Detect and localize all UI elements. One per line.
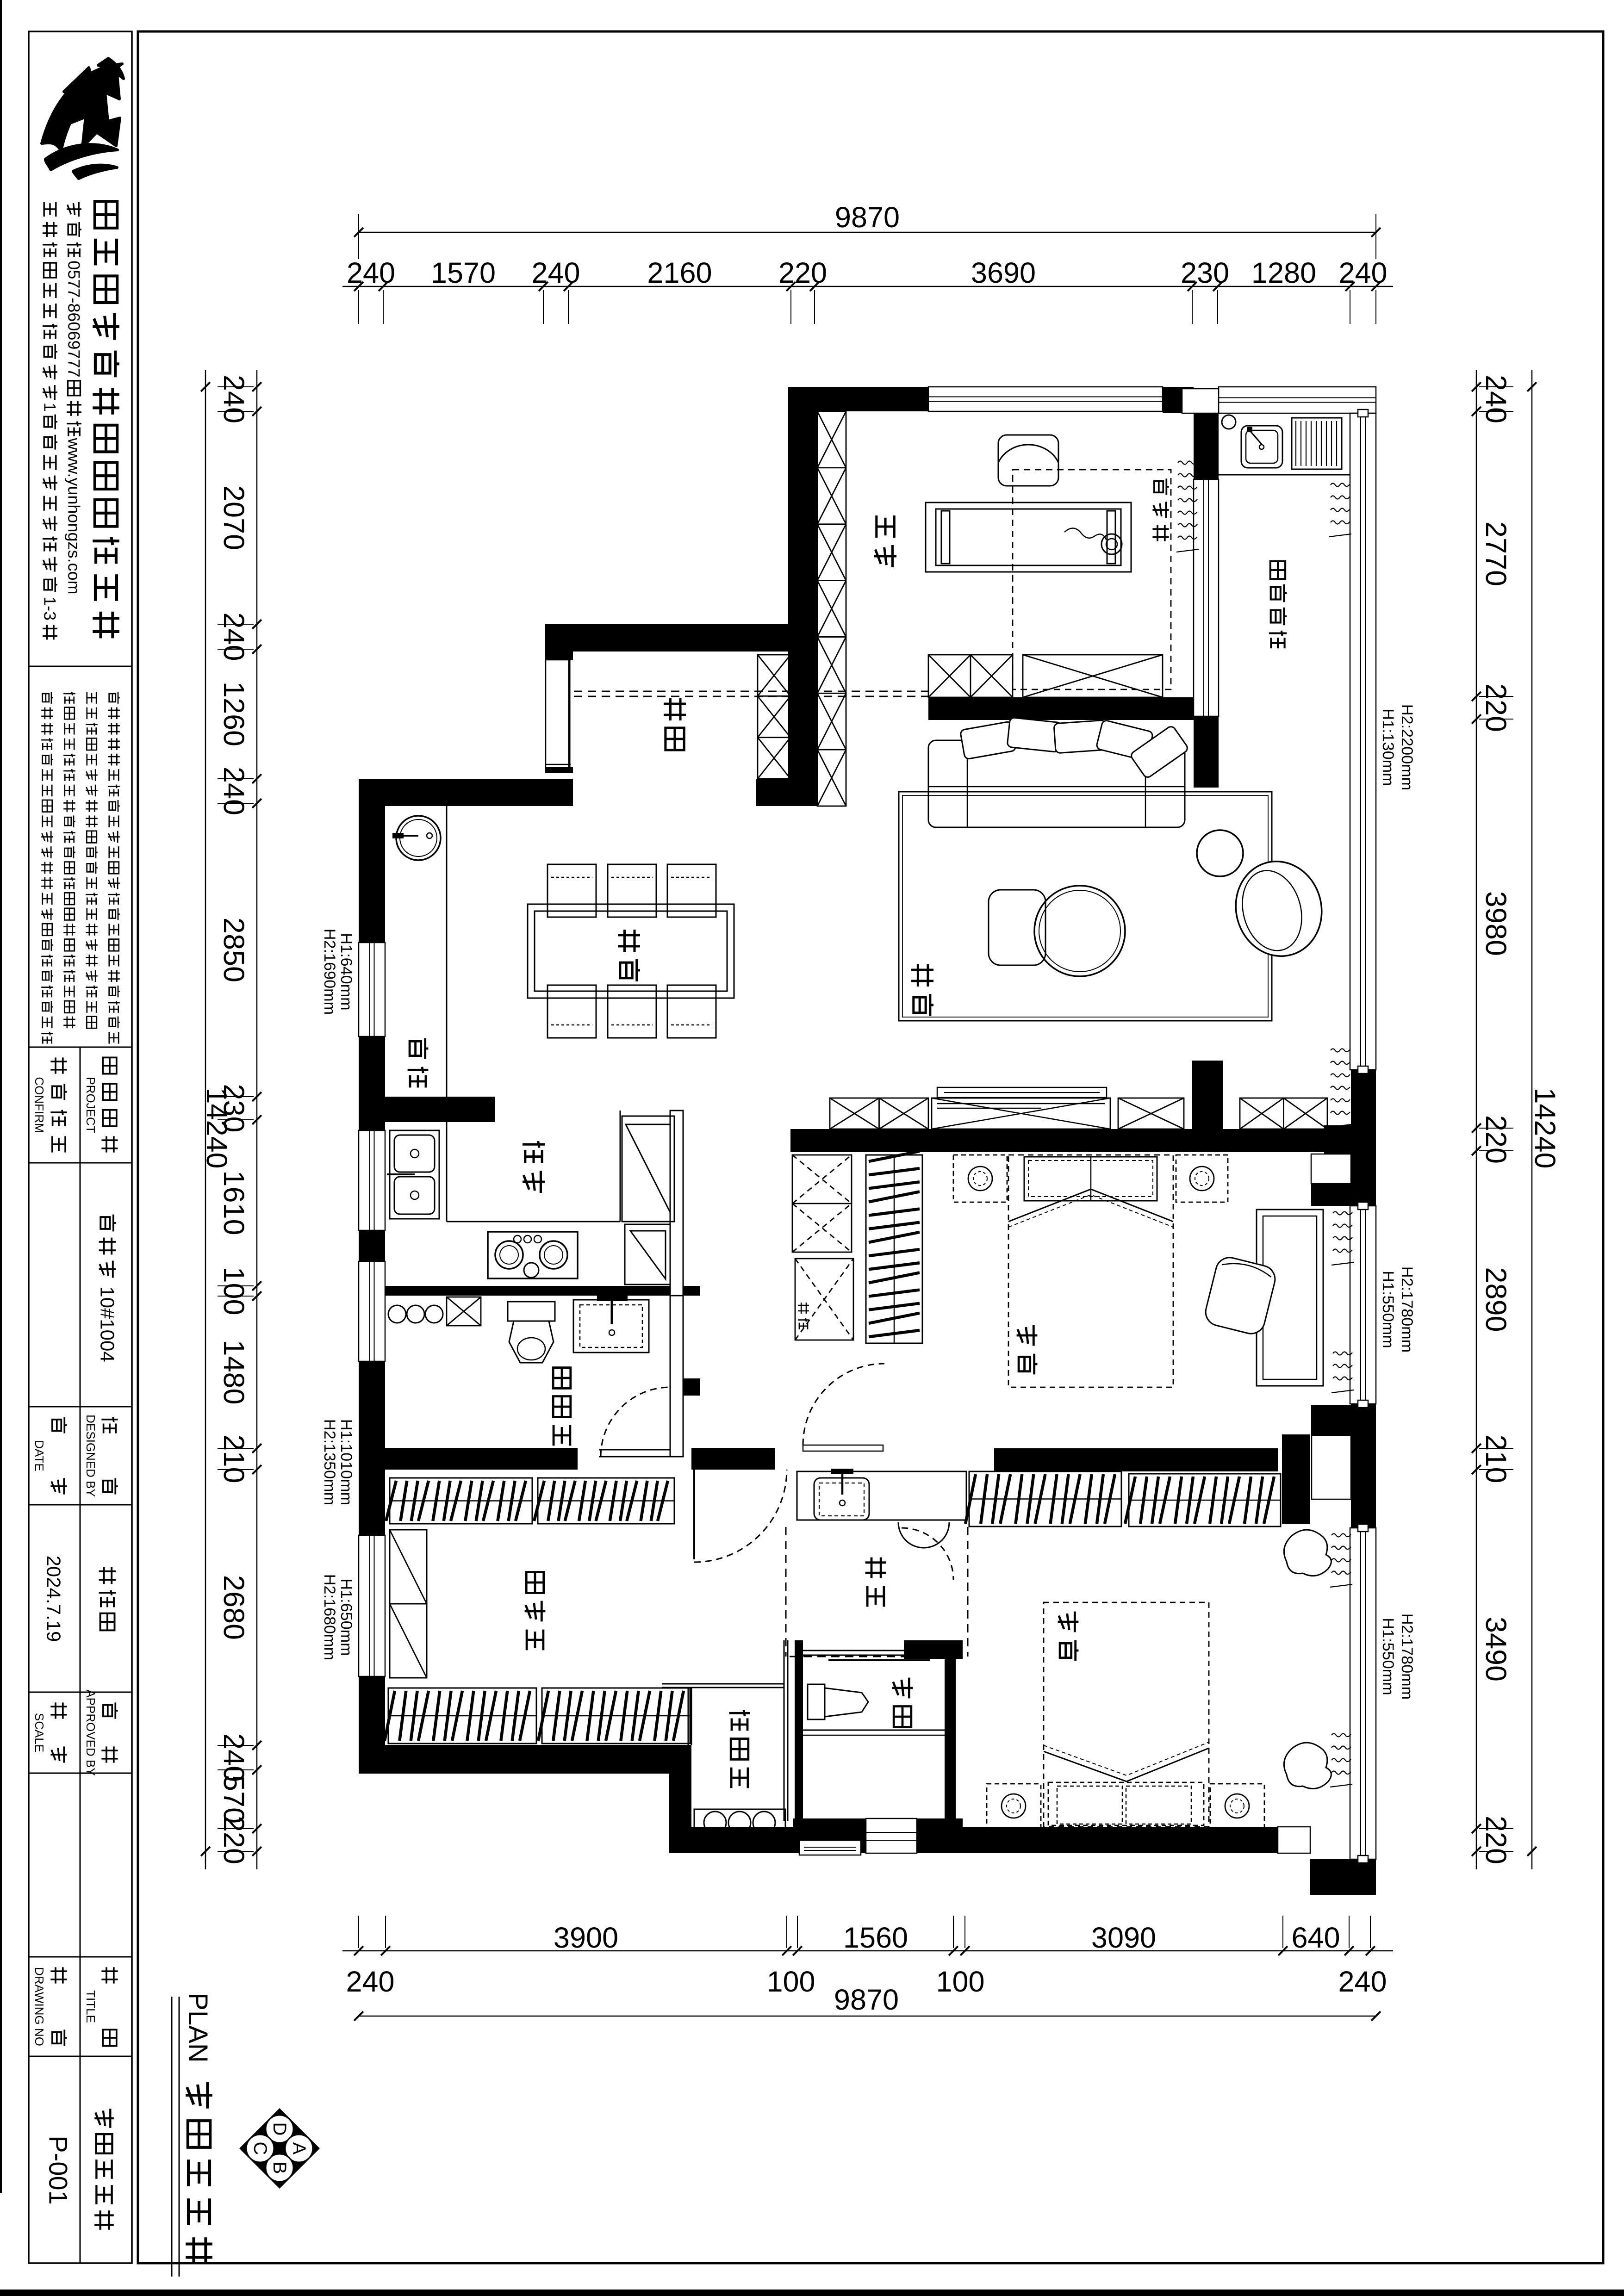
svg-text:210: 210 (1480, 1434, 1512, 1483)
svg-text:220: 220 (778, 257, 827, 289)
svg-text:PLAN: PLAN (183, 1992, 213, 2063)
svg-text:220: 220 (1480, 683, 1512, 732)
svg-text:230: 230 (1181, 257, 1229, 289)
svg-text:H1:550mm: H1:550mm (1379, 1271, 1397, 1348)
svg-text:0577-86069777: 0577-86069777 (65, 261, 84, 377)
svg-text:2024.7.19: 2024.7.19 (43, 1556, 65, 1642)
svg-text:240: 240 (1338, 1966, 1387, 1998)
svg-text:APPROVED BY: APPROVED BY (84, 1689, 98, 1775)
svg-text:1570: 1570 (431, 257, 496, 289)
svg-text:1560: 1560 (843, 1922, 908, 1954)
svg-text:1610: 1610 (218, 1170, 250, 1235)
svg-text:9870: 9870 (834, 1984, 899, 2016)
svg-text:H2:1350mm: H2:1350mm (321, 1419, 338, 1505)
svg-text:3980: 3980 (1480, 891, 1512, 956)
svg-text:H1:130mm: H1:130mm (1379, 708, 1397, 786)
svg-text:1280: 1280 (1251, 257, 1316, 289)
svg-text:240: 240 (347, 257, 395, 289)
svg-text:240: 240 (218, 767, 250, 815)
svg-text:640: 640 (1291, 1922, 1340, 1954)
svg-text:100: 100 (936, 1966, 984, 1998)
svg-text:TITLE: TITLE (84, 1990, 98, 2023)
svg-text:3690: 3690 (971, 257, 1036, 289)
svg-text:10#1004: 10#1004 (97, 1286, 118, 1362)
svg-text:240: 240 (218, 612, 250, 661)
svg-text:www.yunhongzs.com: www.yunhongzs.com (65, 437, 84, 594)
svg-text:2770: 2770 (1480, 521, 1512, 586)
svg-text:1: 1 (41, 403, 60, 412)
svg-text:D: D (269, 2122, 290, 2136)
svg-text:H1:1010mm: H1:1010mm (337, 1419, 355, 1505)
svg-text:DATE: DATE (32, 1440, 46, 1471)
svg-text:3090: 3090 (1091, 1922, 1156, 1954)
svg-text:220: 220 (1480, 1115, 1512, 1164)
svg-text:SCALE: SCALE (32, 1713, 46, 1752)
svg-text:1260: 1260 (218, 682, 250, 746)
svg-text:C: C (250, 2142, 270, 2155)
svg-text:H2:1780mm: H2:1780mm (1398, 1266, 1416, 1353)
svg-text:H1:650mm: H1:650mm (337, 1578, 355, 1656)
svg-text:PROJECT: PROJECT (84, 1077, 98, 1133)
svg-text:3900: 3900 (554, 1922, 618, 1954)
svg-text:H2:1690mm: H2:1690mm (321, 929, 338, 1015)
svg-text:H1:550mm: H1:550mm (1379, 1618, 1397, 1695)
svg-text:220: 220 (1480, 1816, 1512, 1864)
svg-text:P-001: P-001 (44, 2135, 73, 2204)
svg-text:240: 240 (531, 257, 580, 289)
svg-text:H1:640mm: H1:640mm (337, 933, 355, 1010)
svg-text:DESIGNED BY: DESIGNED BY (84, 1415, 98, 1497)
svg-text:240: 240 (218, 375, 250, 423)
svg-text:1480: 1480 (218, 1340, 250, 1404)
svg-text:220: 220 (218, 1816, 250, 1864)
svg-text:210: 210 (218, 1434, 250, 1483)
svg-text:240: 240 (1338, 257, 1387, 289)
svg-text:240: 240 (1480, 375, 1512, 423)
svg-text:CONFIRM: CONFIRM (32, 1077, 46, 1133)
svg-text:H2:1680mm: H2:1680mm (321, 1574, 338, 1660)
svg-text:9870: 9870 (835, 201, 900, 234)
svg-text:A: A (289, 2142, 309, 2155)
svg-text:2890: 2890 (1480, 1267, 1512, 1332)
svg-text:100: 100 (218, 1266, 250, 1315)
svg-text:14240: 14240 (1529, 1087, 1561, 1168)
svg-text:100: 100 (766, 1966, 815, 1998)
svg-text:14240: 14240 (200, 1087, 233, 1168)
svg-text:DRAWING NO: DRAWING NO (32, 1967, 46, 2046)
svg-text:H2:2200mm: H2:2200mm (1398, 704, 1416, 790)
svg-text:2070: 2070 (218, 485, 250, 550)
svg-text:2850: 2850 (218, 918, 250, 982)
svg-text:H2:1780mm: H2:1780mm (1398, 1613, 1416, 1700)
svg-text:B: B (269, 2162, 290, 2174)
svg-text:2160: 2160 (647, 257, 712, 289)
svg-text:240: 240 (346, 1966, 394, 1998)
svg-text:2680: 2680 (218, 1575, 250, 1640)
svg-text:3490: 3490 (1480, 1617, 1512, 1682)
svg-text:1-3: 1-3 (41, 596, 60, 621)
